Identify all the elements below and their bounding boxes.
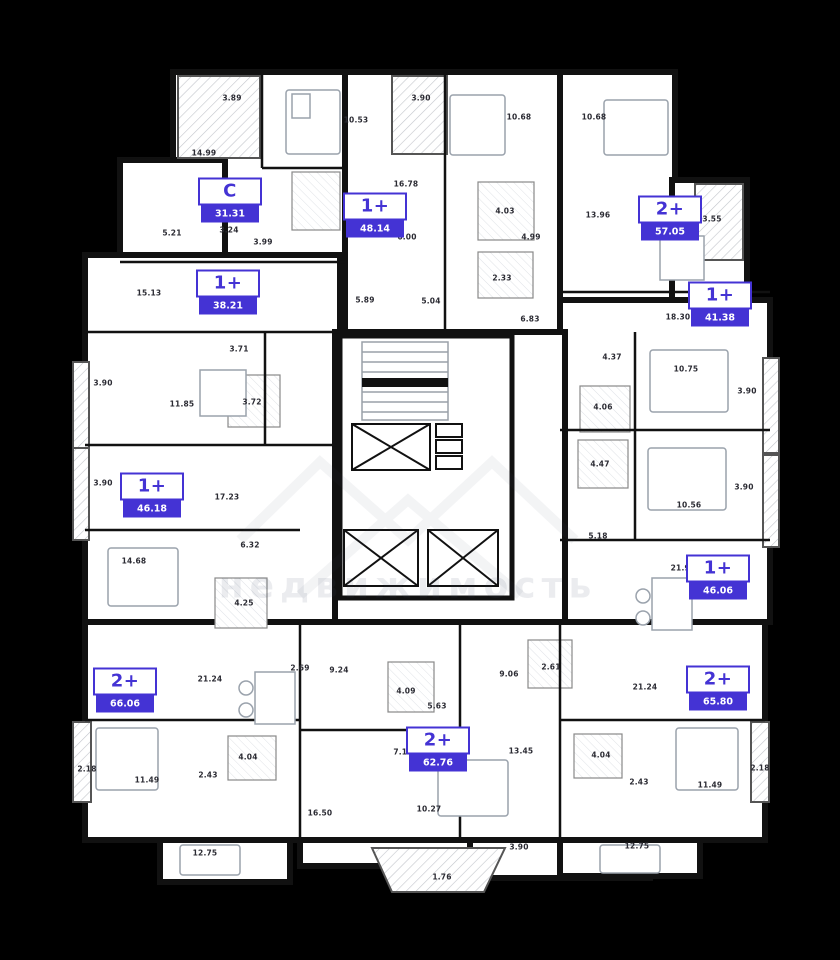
unit-area-label: 62.76 (409, 755, 467, 772)
watermark-text: недвижимость (219, 566, 598, 607)
unit-area-label: 41.38 (691, 310, 749, 327)
dimension-label: 2.33 (492, 274, 511, 283)
unit-area-label: 46.18 (123, 501, 181, 518)
unit-badge[interactable]: 1+48.14 (343, 193, 407, 238)
unit-type-label: 2+ (638, 196, 702, 224)
dimension-label: 3.90 (509, 843, 528, 852)
dimension-label: 2.69 (290, 664, 309, 673)
dimension-label: 4.25 (234, 599, 253, 608)
dimension-label: 5.18 (588, 532, 607, 541)
unit-type-label: 2+ (93, 668, 157, 696)
dimension-label: 4.37 (602, 353, 621, 362)
dimension-label: 4.99 (521, 233, 540, 242)
dimension-label: 4.47 (590, 460, 609, 469)
dimension-label: 5.04 (421, 297, 440, 306)
dimension-label: 10.75 (674, 365, 699, 374)
unit-type-label: 2+ (406, 727, 470, 755)
dimension-label: 3.90 (734, 483, 753, 492)
dimension-label: 2.43 (629, 778, 648, 787)
dimension-label: 10.56 (677, 501, 702, 510)
unit-badge[interactable]: 2+57.05 (638, 196, 702, 241)
unit-type-label: 1+ (688, 282, 752, 310)
dimension-label: 12.75 (625, 842, 650, 851)
unit-badge[interactable]: 1+46.06 (686, 555, 750, 600)
dimension-label: 5.89 (355, 296, 374, 305)
unit-area-label: 38.21 (199, 298, 257, 315)
dimension-label: 4.04 (591, 751, 610, 760)
dimension-label: 6.83 (520, 315, 539, 324)
dimension-label: 3.90 (737, 387, 756, 396)
unit-type-label: C (198, 178, 262, 206)
dimension-label: 3.71 (229, 345, 248, 354)
dimension-label: 10.53 (344, 116, 369, 125)
unit-badge[interactable]: C31.31 (198, 178, 262, 223)
dimension-label: 21.24 (198, 675, 223, 684)
dimension-label: 5.63 (427, 702, 446, 711)
unit-area-label: 48.14 (346, 221, 404, 238)
dimension-label: 2.18 (77, 765, 96, 774)
unit-area-label: 31.31 (201, 206, 259, 223)
unit-type-label: 1+ (196, 270, 260, 298)
dimension-label: 10.68 (582, 113, 607, 122)
unit-area-label: 66.06 (96, 696, 154, 713)
dimension-label: 16.50 (308, 809, 333, 818)
dimension-label: 2.43 (198, 771, 217, 780)
unit-area-label: 57.05 (641, 224, 699, 241)
dimension-label: 3.99 (253, 238, 272, 247)
dimension-label: 11.85 (170, 400, 195, 409)
dimension-label: 5.21 (162, 229, 181, 238)
dimension-label: 9.06 (499, 670, 518, 679)
unit-badge[interactable]: 2+66.06 (93, 668, 157, 713)
floorplan-page: C31.311+48.142+57.051+38.211+41.381+46.1… (0, 0, 840, 960)
dimension-label: 10.27 (417, 805, 442, 814)
unit-badge[interactable]: 1+41.38 (688, 282, 752, 327)
dimension-label: 1.76 (432, 873, 451, 882)
dimension-label: 14.68 (122, 557, 147, 566)
unit-area-label: 65.80 (689, 694, 747, 711)
dimension-label: 3.24 (219, 226, 238, 235)
unit-badge[interactable]: 2+65.80 (686, 666, 750, 711)
unit-type-label: 2+ (686, 666, 750, 694)
dimension-label: 4.03 (495, 207, 514, 216)
dimension-label: 16.78 (394, 180, 419, 189)
dimension-label: 4.04 (238, 753, 257, 762)
dimension-label: 13.96 (586, 211, 611, 220)
unit-badge[interactable]: 2+62.76 (406, 727, 470, 772)
unit-badge[interactable]: 1+38.21 (196, 270, 260, 315)
stair-landing (362, 378, 448, 387)
dimension-label: 14.99 (192, 149, 217, 158)
dimension-label: 3.72 (242, 398, 261, 407)
unit-type-label: 1+ (120, 473, 184, 501)
unit-badge[interactable]: 1+46.18 (120, 473, 184, 518)
dimension-label: 10.68 (507, 113, 532, 122)
dimension-label: 17.23 (215, 493, 240, 502)
dimension-label: 3.89 (222, 94, 241, 103)
dimension-label: 9.24 (329, 666, 348, 675)
dimension-label: 15.13 (137, 289, 162, 298)
dimension-label: 2.61 (541, 663, 560, 672)
dimension-label: 2.18 (750, 764, 769, 773)
dimension-label: 3.55 (702, 215, 721, 224)
dimension-label: 4.09 (396, 687, 415, 696)
unit-type-label: 1+ (686, 555, 750, 583)
dimension-label: 6.32 (240, 541, 259, 550)
dimension-label: 11.49 (698, 781, 723, 790)
dimension-label: 3.90 (411, 94, 430, 103)
unit-area-label: 46.06 (689, 583, 747, 600)
dimension-label: 21.24 (633, 683, 658, 692)
dimension-label: 3.90 (93, 479, 112, 488)
dimension-label: 11.49 (135, 776, 160, 785)
dimension-label: 3.90 (93, 379, 112, 388)
unit-type-label: 1+ (343, 193, 407, 221)
dimension-label: 18.30 (666, 313, 691, 322)
dimension-label: 12.75 (193, 849, 218, 858)
dimension-label: 4.06 (593, 403, 612, 412)
dimension-label: 13.45 (509, 747, 534, 756)
